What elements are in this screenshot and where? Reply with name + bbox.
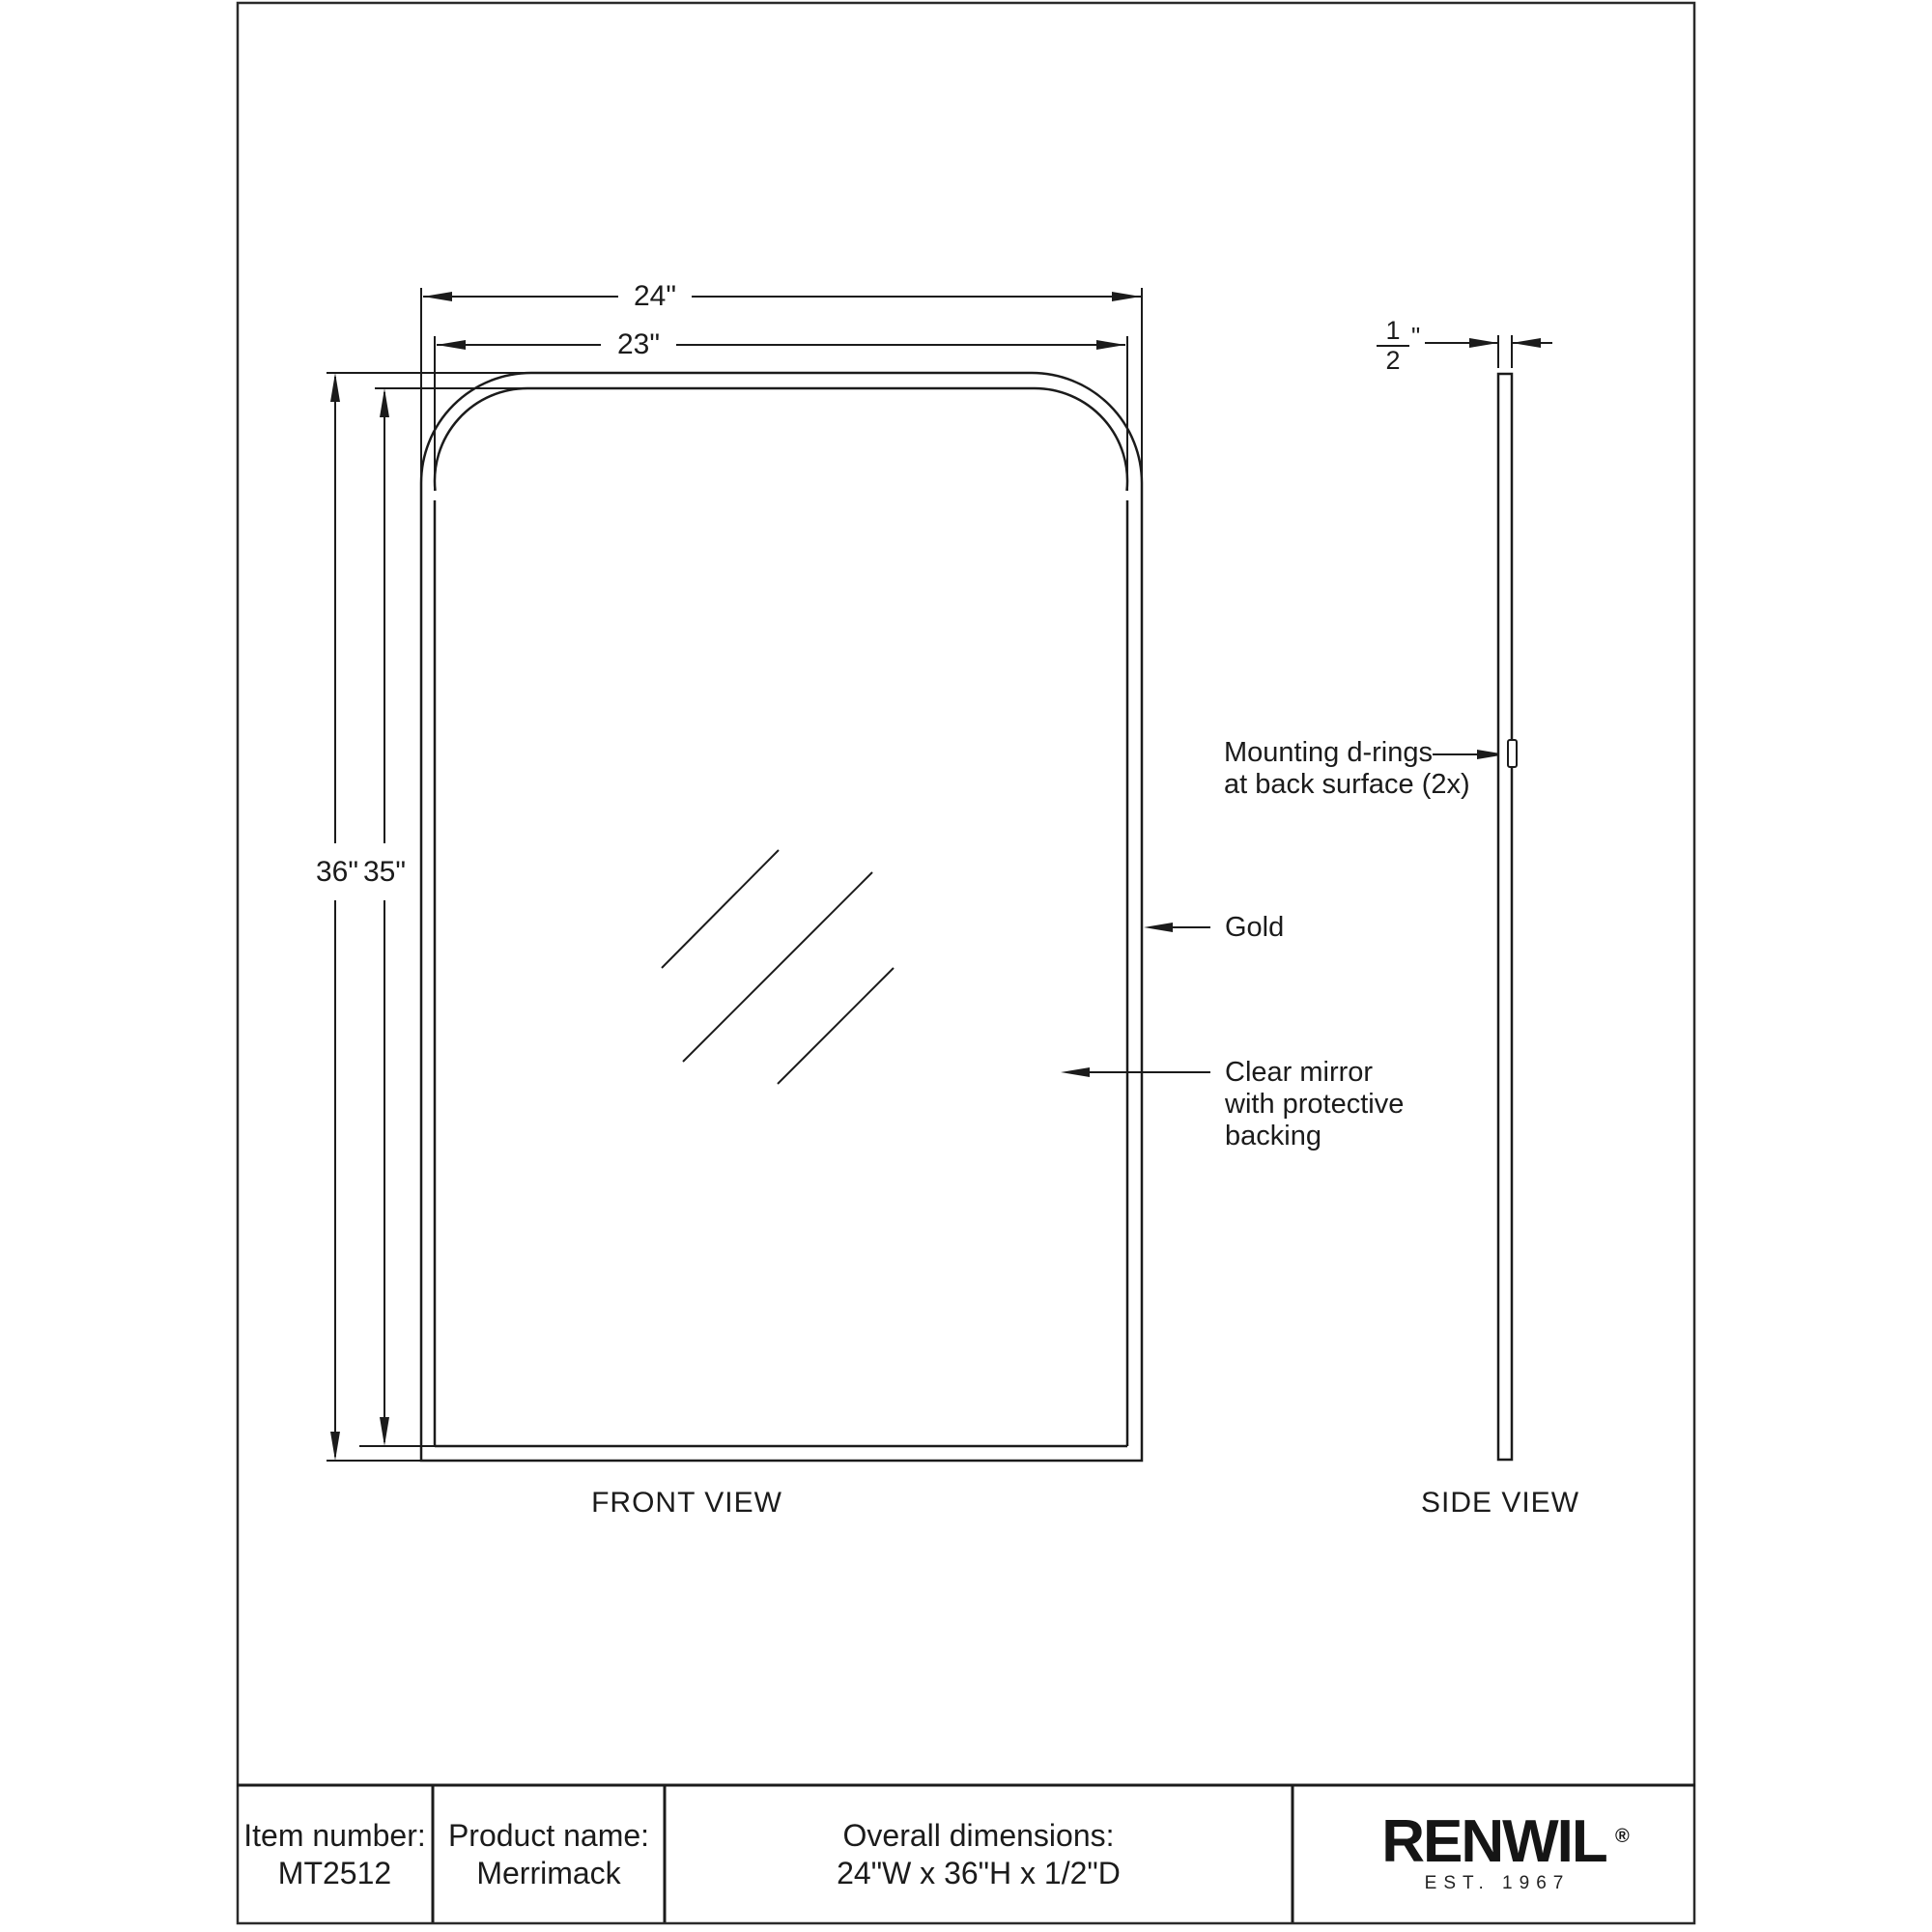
annotation-finish: Gold bbox=[1225, 912, 1284, 944]
annotation-mirror-line3: backing bbox=[1225, 1121, 1404, 1152]
depth-numerator: 1 bbox=[1377, 318, 1409, 347]
annotation-mounting: Mounting d-rings at back surface (2x) bbox=[1224, 737, 1470, 801]
titleblock-dimensions-cell: Overall dimensions: 24"W x 36"H x 1/2"D bbox=[665, 1785, 1293, 1924]
annotation-mirror-line2: with protective bbox=[1225, 1089, 1404, 1121]
dimension-overall-width: 24" bbox=[597, 280, 713, 313]
dimension-depth-fraction: 1 2 bbox=[1377, 318, 1409, 374]
titleblock-item-cell: Item number: MT2512 bbox=[237, 1785, 433, 1924]
page-border bbox=[238, 3, 1694, 1923]
dimension-overall-height: 36" bbox=[311, 856, 363, 889]
mirror-outer-frame bbox=[421, 373, 1142, 1461]
registered-trademark-mark: ® bbox=[1615, 1809, 1630, 1863]
overall-dimensions-value: 24"W x 36"H x 1/2"D bbox=[837, 1855, 1121, 1892]
mirror-inner-frame bbox=[435, 388, 1127, 1446]
mirror-shine-lines bbox=[662, 850, 894, 1084]
technical-drawing-sheet: 24" 23" 36" 35" 1 2 " Mounting d-rings a… bbox=[0, 0, 1932, 1932]
annotation-mounting-line1: Mounting d-rings bbox=[1224, 737, 1470, 769]
titleblock-brand-cell: RENWIL ® EST. 1967 bbox=[1293, 1785, 1695, 1924]
dimension-inner-height: 35" bbox=[358, 856, 411, 889]
d-ring-tab bbox=[1508, 740, 1517, 767]
overall-dimensions-label: Overall dimensions: bbox=[843, 1817, 1115, 1855]
titleblock-product-cell: Product name: Merrimack bbox=[433, 1785, 665, 1924]
side-view-profile bbox=[1498, 374, 1512, 1460]
arrowheads bbox=[330, 292, 1541, 1461]
annotation-mirror-line1: Clear mirror bbox=[1225, 1057, 1404, 1089]
depth-unit-mark: " bbox=[1411, 322, 1420, 352]
front-view-label: FRONT VIEW bbox=[542, 1487, 832, 1520]
side-view-label: SIDE VIEW bbox=[1355, 1487, 1645, 1520]
annotation-mounting-line2: at back surface (2x) bbox=[1224, 769, 1470, 801]
product-name-label: Product name: bbox=[448, 1817, 649, 1855]
item-number-value: MT2512 bbox=[278, 1855, 391, 1892]
extension-lines bbox=[327, 288, 1512, 1461]
drawing-linework bbox=[0, 0, 1932, 1932]
annotation-mirror: Clear mirror with protective backing bbox=[1225, 1057, 1404, 1152]
product-name-value: Merrimack bbox=[476, 1855, 620, 1892]
brand-logo: RENWIL ® EST. 1967 bbox=[1381, 1815, 1606, 1894]
dimension-inner-width: 23" bbox=[581, 328, 696, 361]
item-number-label: Item number: bbox=[243, 1817, 426, 1855]
brand-wordmark: RENWIL ® bbox=[1381, 1815, 1606, 1869]
depth-denominator: 2 bbox=[1377, 347, 1409, 374]
brand-wordmark-text: RENWIL bbox=[1381, 1808, 1606, 1875]
brand-established: EST. 1967 bbox=[1425, 1873, 1571, 1894]
dimension-lines bbox=[335, 297, 1552, 1457]
